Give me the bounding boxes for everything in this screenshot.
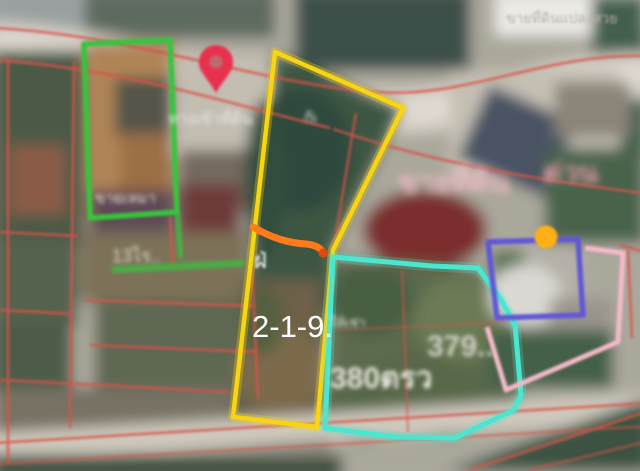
access-road-note: ทางเข้าที่ดิน [168,107,253,128]
orange-circle-marker[interactable] [535,226,558,249]
satellite-map-image: 2-1-9. 379.. 380ตรว ให้เช่า 13ไร.. ขายเห… [0,0,640,471]
watermark-text: ขายที่ดินแปลงสวย [506,9,617,26]
promo-text-left: ขายที่ดิน [398,161,509,199]
cyan-parcel-area-label-right: 379.. [427,330,494,363]
map-canvas: 2-1-9. 379.. 380ตรว ให้เช่า 13ไร.. ขายเห… [0,0,640,471]
orange-highlight-tip [319,249,328,258]
cyan-parcel-note: ให้เช่า [330,315,365,330]
green-parcel-note: ขายเหมา [95,190,156,207]
pin-inner-dot [210,56,223,69]
promo-text-right: ด่วน [543,157,598,189]
cyan-parcel-area-label-left: 380ตรว [330,362,433,395]
house-number-label: ก้เ [304,109,317,125]
side-glyph-label: ฝ่ [254,248,267,273]
left-area-note: 13ไร.. [112,245,161,266]
yellow-parcel-area-label: 2-1-9. [252,309,333,344]
